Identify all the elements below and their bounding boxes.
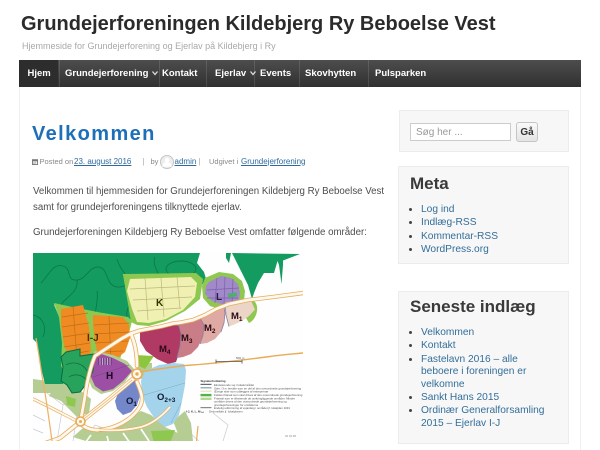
svg-text:500 m: 500 m [236, 356, 245, 360]
svg-text:Delområder jf. lokalplanen: Delområder jf. lokalplanen [209, 409, 243, 413]
svg-text:K: K [156, 298, 164, 309]
svg-text:I-J: I-J [87, 333, 99, 344]
svg-text:02 04 08: 02 04 08 [285, 434, 296, 438]
svg-text:L: L [216, 292, 222, 303]
svg-text:H: H [106, 371, 113, 382]
